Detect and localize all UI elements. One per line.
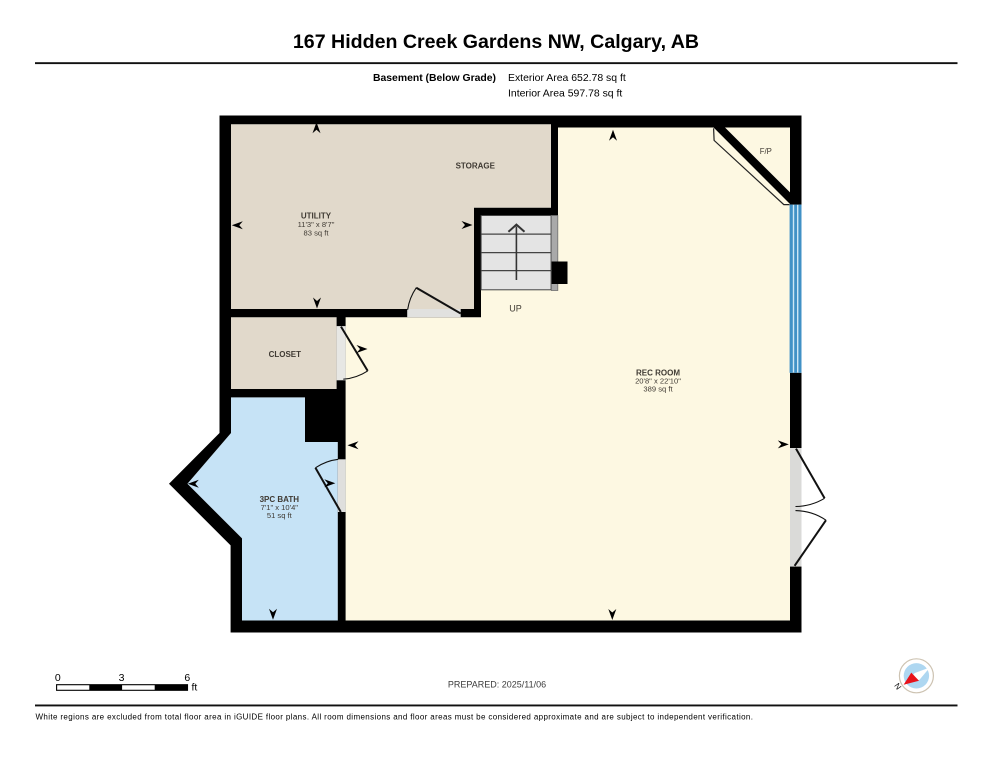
svg-text:ft: ft: [192, 682, 198, 694]
svg-text:Interior Area 597.78 sq ft: Interior Area 597.78 sq ft: [508, 88, 622, 99]
svg-text:PREPARED: 2025/11/06: PREPARED: 2025/11/06: [448, 680, 546, 690]
svg-text:389 sq ft: 389 sq ft: [643, 384, 673, 393]
svg-text:3: 3: [119, 672, 125, 684]
svg-text:6: 6: [184, 672, 190, 684]
svg-text:CLOSET: CLOSET: [269, 350, 302, 359]
svg-text:51 sq ft: 51 sq ft: [267, 511, 293, 520]
svg-text:UP: UP: [509, 303, 522, 313]
svg-text:83 sq ft: 83 sq ft: [304, 228, 330, 237]
svg-text:0: 0: [55, 672, 61, 684]
svg-text:Exterior Area 652.78 sq ft: Exterior Area 652.78 sq ft: [508, 73, 626, 84]
svg-text:Basement (Below Grade): Basement (Below Grade): [373, 73, 496, 84]
svg-text:167 Hidden Creek Gardens NW, C: 167 Hidden Creek Gardens NW, Calgary, AB: [293, 31, 699, 53]
svg-text:STORAGE: STORAGE: [456, 162, 496, 171]
svg-text:White regions are excluded fro: White regions are excluded from total fl…: [36, 712, 754, 721]
svg-text:F/P: F/P: [760, 147, 772, 156]
